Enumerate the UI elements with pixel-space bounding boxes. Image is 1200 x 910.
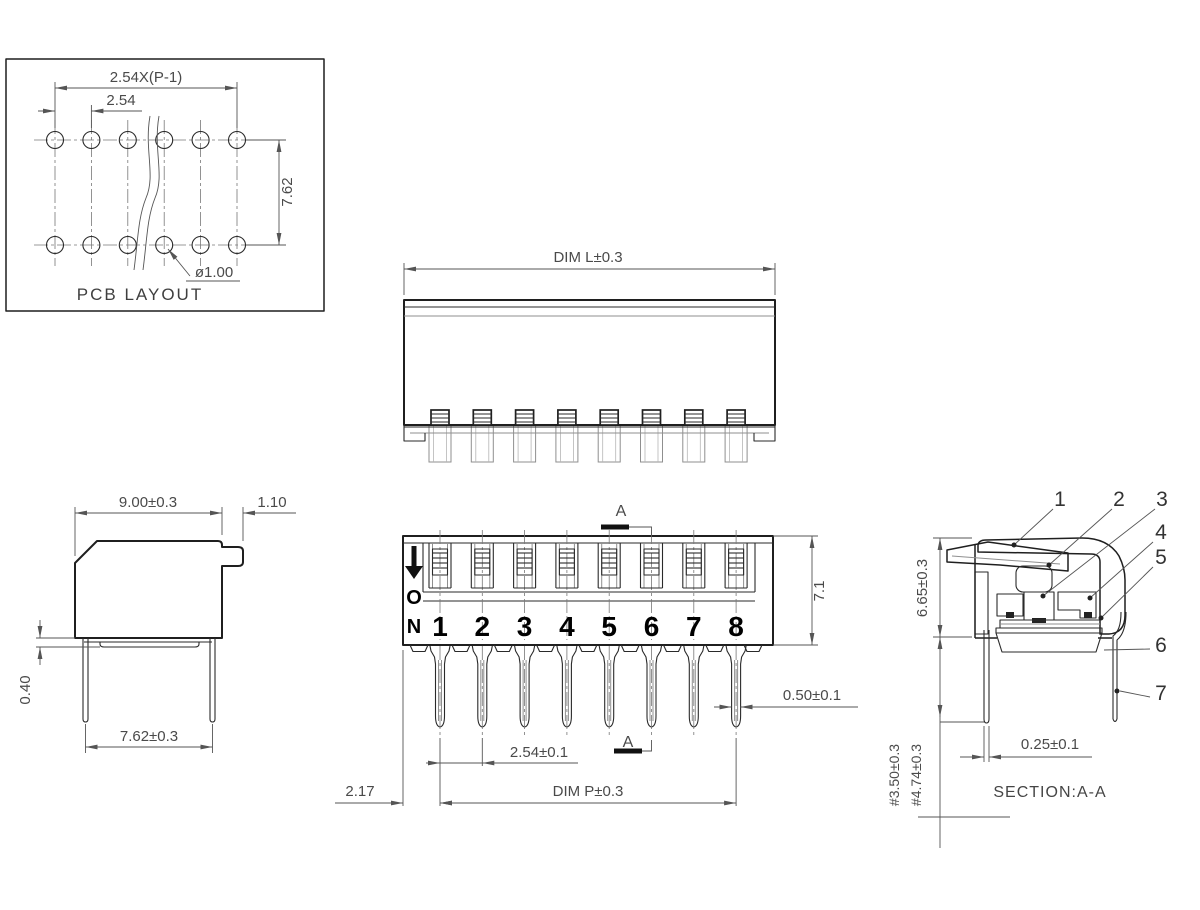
section-title: SECTION:A-A bbox=[993, 784, 1106, 801]
dim-pitch-total: 2.54X(P-1) bbox=[55, 69, 237, 128]
dim-label-pin-length-b: #4.74±0.3 bbox=[908, 744, 924, 806]
pcb-layout-title: PCB LAYOUT bbox=[77, 285, 203, 304]
section-contact-center bbox=[1024, 592, 1054, 620]
dim-label-tab: 1.10 bbox=[257, 494, 286, 511]
front-pins bbox=[430, 646, 746, 738]
top-pin-tabs bbox=[431, 410, 745, 425]
switch-number-5: 5 bbox=[601, 611, 617, 642]
view-section: 1 2 3 4 5 6 7 6.65±0.3 #3.50±0.3 bbox=[886, 488, 1168, 848]
switch-numbers: 1 2 3 4 5 6 7 8 bbox=[432, 611, 744, 642]
dim-pin-thickness: 0.25±0.1 bbox=[960, 726, 1092, 762]
switch-number-6: 6 bbox=[644, 611, 660, 642]
part-number-6: 6 bbox=[1155, 634, 1167, 657]
dim-label-pin-thickness: 0.25±0.1 bbox=[1021, 736, 1079, 753]
on-letter-n: N bbox=[407, 616, 421, 638]
side-pin-right bbox=[210, 638, 215, 722]
view-top: DIM L±0.3 bbox=[404, 249, 775, 462]
top-pin-shafts bbox=[429, 425, 747, 462]
part-number-1: 1 bbox=[1054, 488, 1066, 511]
leader-hole-diameter: ø1.00 bbox=[168, 249, 240, 281]
section-marker-bottom: A bbox=[623, 734, 634, 751]
part-number-4: 4 bbox=[1155, 521, 1167, 544]
part-number-5: 5 bbox=[1155, 546, 1167, 569]
dim-pin-row-spacing: 7.62±0.3 bbox=[86, 724, 213, 753]
switch-number-7: 7 bbox=[686, 611, 702, 642]
view-front: O N 1 2 3 4 5 6 7 8 bbox=[335, 503, 858, 806]
view-pcb-layout: 2.54X(P-1) 2.54 7.62 ø1.00 PCB LAYOUT bbox=[6, 59, 324, 311]
dim-label-end-offset: 2.17 bbox=[345, 783, 374, 800]
switch-number-2: 2 bbox=[475, 611, 491, 642]
dim-label-pitch-total: 2.54X(P-1) bbox=[110, 69, 183, 86]
top-body-outline bbox=[404, 300, 775, 425]
front-body-outline bbox=[403, 536, 773, 645]
engineering-drawing-page: 2.54X(P-1) 2.54 7.62 ø1.00 PCB LAYOUT bbox=[0, 0, 1200, 910]
dim-tab: 1.10 bbox=[243, 494, 296, 541]
dim-label-height: 7.1 bbox=[811, 581, 828, 602]
part-number-7: 7 bbox=[1155, 682, 1167, 705]
section-epoxy-seal bbox=[996, 633, 1102, 652]
dim-label-hole-diameter: ø1.00 bbox=[195, 264, 233, 281]
switch-number-4: 4 bbox=[559, 611, 575, 642]
dim-row-spacing: 7.62 bbox=[246, 140, 296, 245]
part-number-2: 2 bbox=[1113, 488, 1125, 511]
break-line bbox=[143, 116, 159, 270]
dim-label-pin-width: 0.50±0.1 bbox=[783, 687, 841, 704]
on-indicator: O N bbox=[405, 546, 423, 638]
dim-length: DIM L±0.3 bbox=[404, 249, 775, 295]
side-pin-left bbox=[83, 638, 88, 722]
section-left-wall bbox=[975, 572, 988, 634]
section-pin-left bbox=[984, 630, 989, 723]
section-pin-right bbox=[1113, 612, 1126, 722]
dim-label-pin-length-a: #3.50±0.3 bbox=[886, 744, 902, 806]
switch-number-1: 1 bbox=[432, 611, 448, 642]
switch-number-8: 8 bbox=[728, 611, 744, 642]
dim-body-width: 9.00±0.3 bbox=[75, 494, 222, 556]
dim-label-body-width: 9.00±0.3 bbox=[119, 494, 177, 511]
section-marker-top: A bbox=[616, 503, 627, 520]
dim-body-height: 6.65±0.3 bbox=[914, 538, 972, 637]
section-actuator-cam bbox=[1016, 566, 1052, 592]
switch-number-3: 3 bbox=[517, 611, 533, 642]
dim-label-row-spacing: 7.62 bbox=[279, 177, 296, 206]
dim-pin-lengths: #3.50±0.3 #4.74±0.3 bbox=[886, 637, 1010, 848]
dim-label-length: DIM L±0.3 bbox=[553, 249, 622, 266]
dim-end-offset: 2.17 bbox=[335, 650, 454, 806]
dim-label-body-height: 6.65±0.3 bbox=[914, 559, 931, 617]
dim-label-pin-span: DIM P±0.3 bbox=[553, 783, 624, 800]
dim-label-pitch: 2.54 bbox=[106, 92, 135, 109]
dim-label-pin-pitch: 2.54±0.1 bbox=[510, 744, 568, 761]
part-number-3: 3 bbox=[1156, 488, 1168, 511]
on-letter-o: O bbox=[406, 587, 422, 609]
view-side: 9.00±0.3 1.10 0.40 7.62±0.3 bbox=[17, 494, 296, 753]
dim-pin-span: DIM P±0.3 bbox=[440, 783, 736, 803]
engineering-drawing-canvas: 2.54X(P-1) 2.54 7.62 ø1.00 PCB LAYOUT bbox=[0, 0, 1200, 910]
down-arrow-icon bbox=[412, 546, 417, 566]
part-leaders: 1 2 3 4 5 6 7 bbox=[1012, 488, 1168, 705]
dim-label-standoff: 0.40 bbox=[17, 675, 34, 704]
dim-label-pin-row-spacing: 7.62±0.3 bbox=[120, 728, 178, 745]
down-arrow-icon bbox=[405, 566, 423, 579]
dim-pin-pitch: 2.54±0.1 bbox=[426, 738, 578, 766]
side-body-outline bbox=[75, 541, 243, 638]
dim-height: 7.1 bbox=[773, 536, 828, 645]
dim-pitch: 2.54 bbox=[38, 92, 142, 128]
dim-pin-width: 0.50±0.1 bbox=[714, 687, 858, 707]
